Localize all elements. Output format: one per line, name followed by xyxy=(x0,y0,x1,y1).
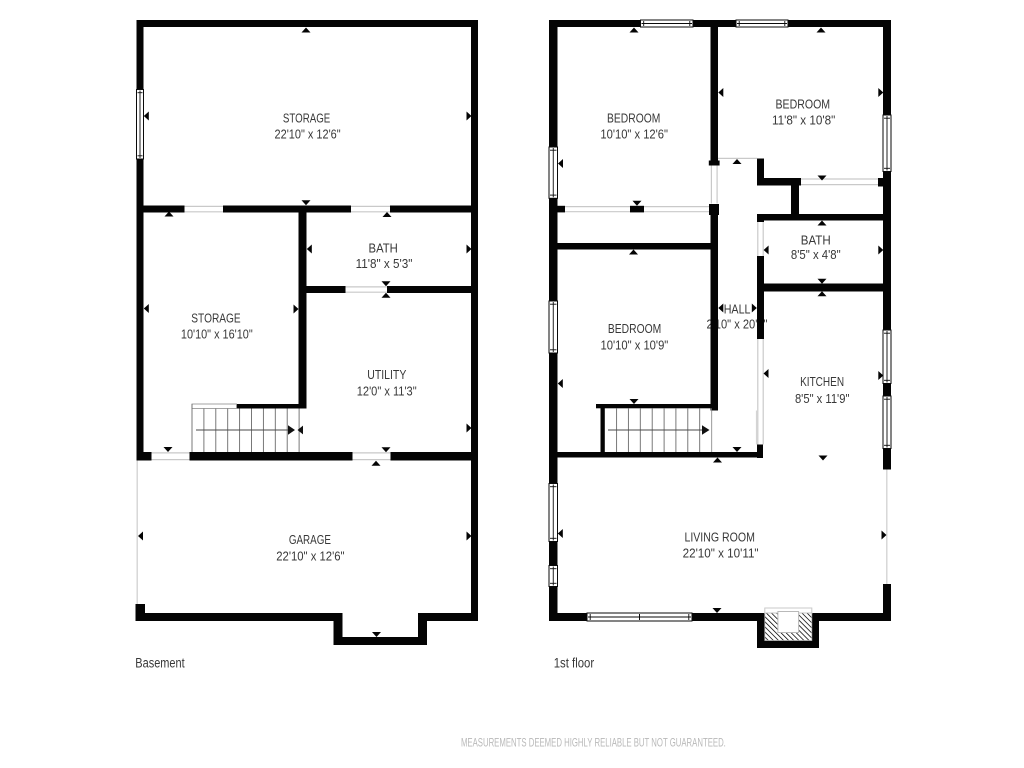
svg-text:KITCHEN: KITCHEN xyxy=(800,375,844,389)
svg-text:STORAGE: STORAGE xyxy=(191,312,240,326)
svg-text:8'5" x 4'8": 8'5" x 4'8" xyxy=(791,248,841,262)
svg-text:8'5" x 11'9": 8'5" x 11'9" xyxy=(795,392,850,406)
svg-text:BEDROOM: BEDROOM xyxy=(776,98,831,112)
svg-text:GARAGE: GARAGE xyxy=(289,533,331,547)
svg-text:10'10" x 12'6": 10'10" x 12'6" xyxy=(600,128,668,142)
svg-text:STORAGE: STORAGE xyxy=(283,112,330,126)
svg-text:UTILITY: UTILITY xyxy=(367,368,407,382)
svg-text:LIVING ROOM: LIVING ROOM xyxy=(684,531,755,545)
svg-text:1st floor: 1st floor xyxy=(554,656,595,671)
svg-text:10'10" x 16'10": 10'10" x 16'10" xyxy=(181,328,253,342)
svg-text:22'10" x 12'6": 22'10" x 12'6" xyxy=(275,128,341,142)
svg-text:BEDROOM: BEDROOM xyxy=(608,322,661,336)
svg-text:Basement: Basement xyxy=(135,656,185,671)
svg-text:10'10" x 10'9": 10'10" x 10'9" xyxy=(601,339,669,353)
svg-text:MEASUREMENTS DEEMED HIGHLY REL: MEASUREMENTS DEEMED HIGHLY RELIABLE BUT … xyxy=(461,736,726,750)
svg-text:BATH: BATH xyxy=(801,234,831,248)
svg-text:22'10" x 10'11": 22'10" x 10'11" xyxy=(683,547,759,561)
svg-text:BATH: BATH xyxy=(369,242,398,256)
svg-text:11'8" x 5'3": 11'8" x 5'3" xyxy=(356,257,413,271)
svg-text:22'10" x 12'6": 22'10" x 12'6" xyxy=(276,550,344,564)
svg-text:BEDROOM: BEDROOM xyxy=(607,112,660,126)
svg-text:12'0" x 11'3": 12'0" x 11'3" xyxy=(357,385,417,399)
svg-text:11'8" x 10'8": 11'8" x 10'8" xyxy=(772,114,835,128)
svg-text:HALL: HALL xyxy=(724,303,751,317)
